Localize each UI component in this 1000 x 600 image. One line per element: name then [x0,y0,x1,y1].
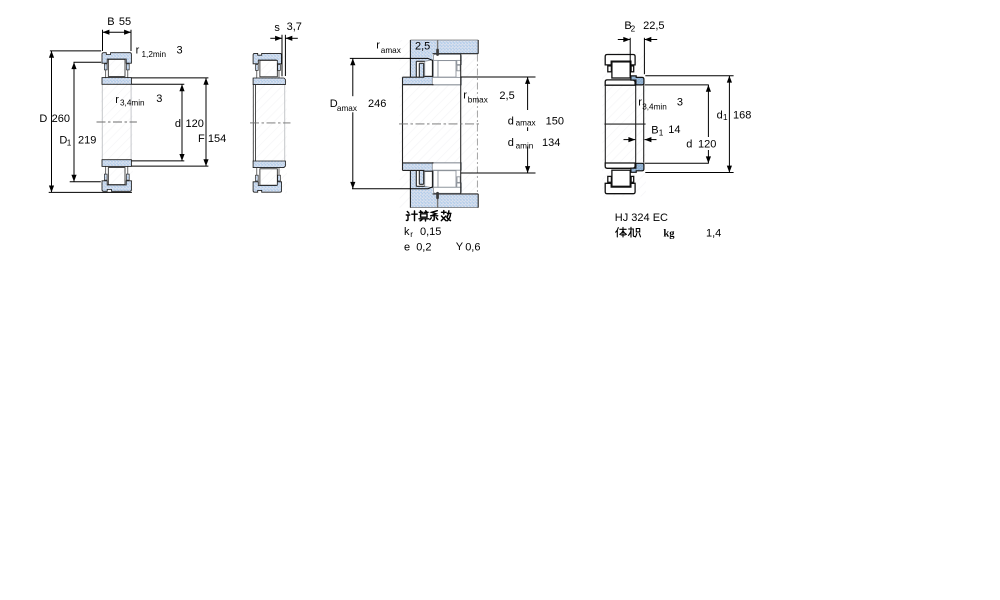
svg-text:1: 1 [659,128,664,137]
svg-text:e: e [404,242,410,254]
svg-text:amax: amax [381,46,401,55]
svg-text:150: 150 [546,116,564,128]
svg-text:3: 3 [156,93,162,105]
svg-text:246: 246 [368,98,386,110]
svg-text:r: r [136,45,140,57]
svg-text:1,4: 1,4 [706,227,721,239]
svg-text:134: 134 [542,137,560,149]
svg-text:120: 120 [186,118,204,130]
svg-text:r: r [410,230,413,239]
svg-text:0,15: 0,15 [420,226,441,238]
svg-text:r: r [463,90,467,102]
svg-text:168: 168 [733,109,751,121]
svg-text:0,6: 0,6 [465,242,480,254]
svg-text:d: d [686,139,692,151]
svg-text:1,2min: 1,2min [142,50,167,59]
svg-text:120: 120 [698,139,716,151]
svg-text:260: 260 [52,113,70,125]
svg-text:3: 3 [177,45,183,57]
svg-text:219: 219 [78,134,96,146]
svg-text:2: 2 [631,24,636,33]
svg-text:14: 14 [668,124,680,136]
svg-text:0,2: 0,2 [416,242,431,254]
svg-text:22,5: 22,5 [643,20,664,32]
svg-text:3,4min: 3,4min [642,102,667,111]
svg-text:d: d [717,109,723,121]
svg-text:k: k [404,226,410,238]
svg-text:F: F [198,133,205,145]
svg-text:d: d [175,118,181,130]
svg-text:1: 1 [723,113,728,122]
svg-text:s: s [274,22,280,34]
svg-text:Y: Y [456,241,464,253]
svg-text:r: r [376,40,380,52]
svg-text:amax: amax [516,118,536,127]
svg-text:HJ 324 EC: HJ 324 EC [615,212,668,224]
svg-text:154: 154 [208,133,226,145]
svg-text:B: B [651,125,658,137]
svg-text:3,7: 3,7 [287,21,302,33]
svg-text:55: 55 [119,16,131,28]
svg-text:d: d [508,137,514,149]
svg-text:D: D [39,113,47,125]
svg-text:2,5: 2,5 [499,90,514,102]
svg-text:bmax: bmax [468,95,488,104]
svg-text:kg: kg [663,229,675,240]
svg-text:1: 1 [67,139,72,148]
svg-text:2,5: 2,5 [415,41,430,53]
svg-text:B: B [107,16,114,28]
svg-text:amin: amin [516,141,534,150]
svg-text:amax: amax [337,104,357,113]
svg-text:r: r [115,94,119,106]
svg-text:3,4min: 3,4min [120,98,145,107]
svg-text:3: 3 [677,97,683,109]
svg-text:d: d [508,116,514,128]
